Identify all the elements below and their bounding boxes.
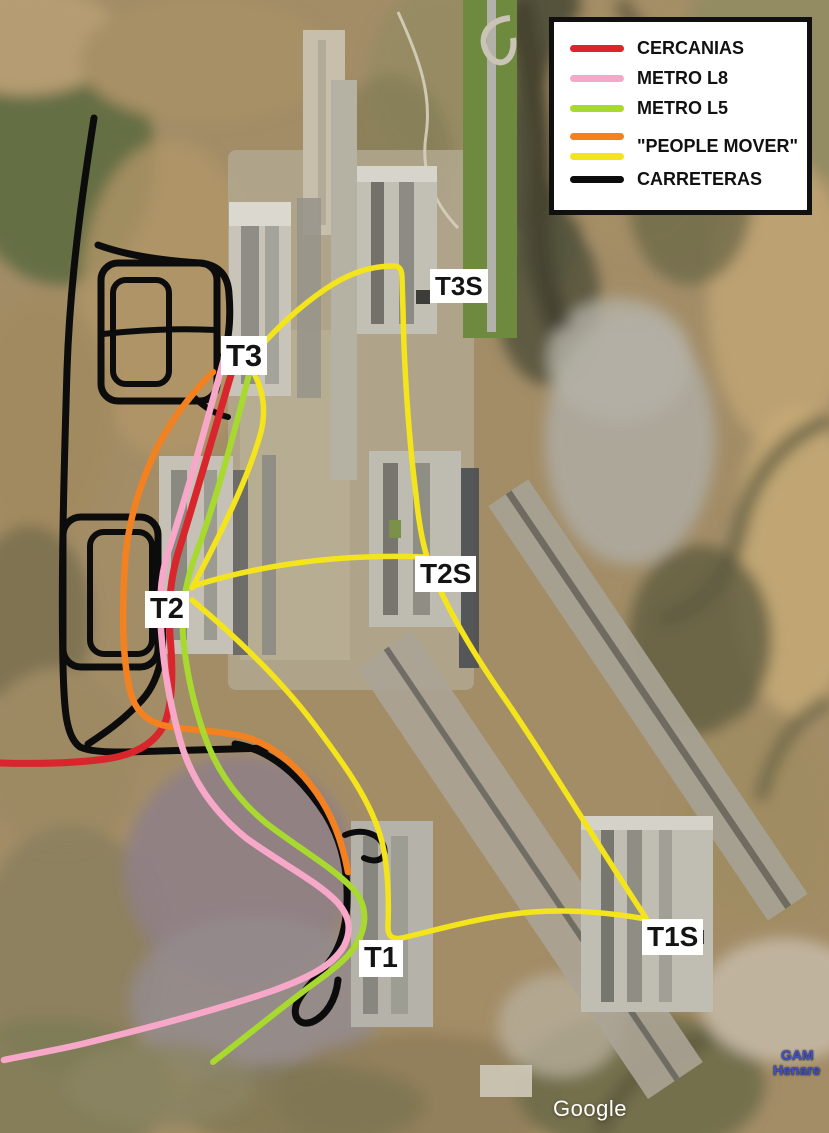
legend-label-metro-l8: METRO L8 [637,68,728,89]
legend-swatch [570,75,624,82]
terminal-label-t3s: T3S [430,269,488,303]
legend-swatch [570,45,624,52]
place-label-line1: GAM [781,1047,814,1063]
legend-item-people-mover: "PEOPLE MOVER" [570,133,799,160]
legend-swatches-people-mover [570,133,624,160]
legend-swatch [570,105,624,112]
terminal-label-t3: T3 [221,336,267,375]
google-watermark: Google [553,1096,627,1122]
terminal-label-t2: T2 [145,591,189,628]
terminal-label-t1s: T1S [642,919,703,955]
legend-label-carreteras: CARRETERAS [637,169,762,190]
legend-swatch [570,153,624,160]
legend-item-metro-l8: METRO L8 [570,68,799,89]
legend-swatches-metro-l5 [570,105,624,112]
legend-swatches-carreteras [570,176,624,183]
legend-rows: CERCANIASMETRO L8METRO L5"PEOPLE MOVER"C… [570,38,799,190]
legend-swatch [570,133,624,140]
legend-label-people-mover: "PEOPLE MOVER" [637,136,798,157]
terminal-label-t1: T1 [359,940,403,977]
legend-swatch [570,176,624,183]
legend-label-metro-l5: METRO L5 [637,98,728,119]
legend-swatches-metro-l8 [570,75,624,82]
place-label-henares: GAM Henare [781,1048,820,1078]
legend-item-carreteras: CARRETERAS [570,169,799,190]
terminal-label-t2s: T2S [415,556,476,592]
legend-item-metro-l5: METRO L5 [570,98,799,119]
annotated-airport-map: T3 T3S T2 T2S T1 T1S CERCANIASMETRO L8ME… [0,0,829,1133]
legend-label-cercanias: CERCANIAS [637,38,744,59]
place-label-line2: Henare [773,1063,820,1078]
legend-swatches-cercanias [570,45,624,52]
map-legend: CERCANIASMETRO L8METRO L5"PEOPLE MOVER"C… [549,17,812,215]
terminal-building-t3s [357,166,437,334]
legend-item-cercanias: CERCANIAS [570,38,799,59]
